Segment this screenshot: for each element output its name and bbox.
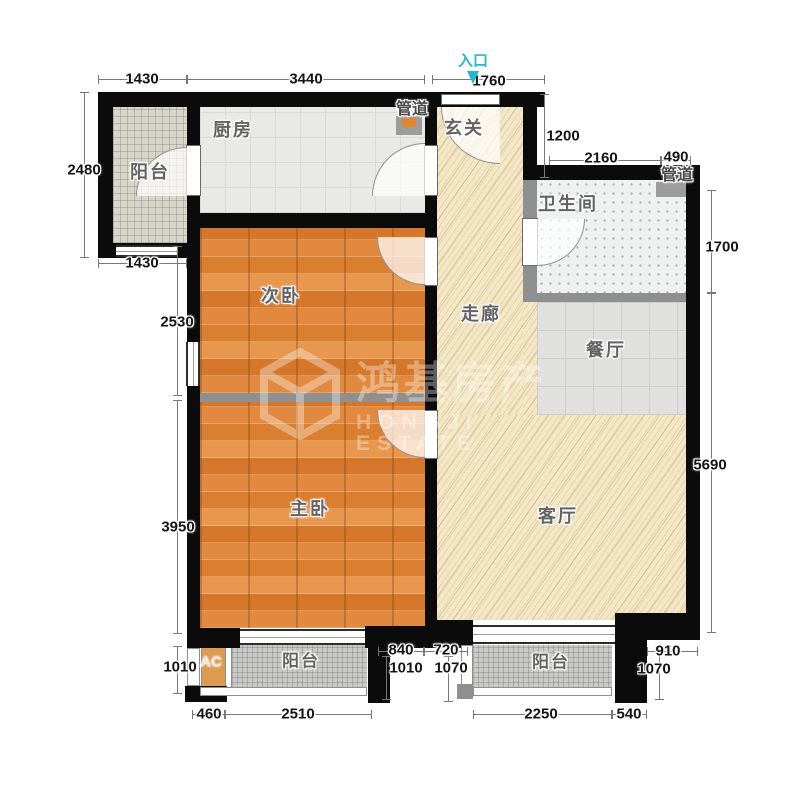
door-bedroom2-leaf (424, 237, 438, 286)
dimline-foyer-1200 (544, 94, 545, 178)
post-balcony-br-corner (457, 684, 473, 699)
window-living-balcony (473, 625, 615, 644)
dim-bathroom-height: 1700 (705, 240, 738, 255)
door-bedroom1-leaf (424, 410, 438, 459)
dim-bedroom2-height: 2530 (160, 315, 193, 330)
dim-balcony-tl-height: 2480 (67, 163, 100, 178)
dim-mid-left-height: 1010 (389, 661, 422, 676)
pipe-box-kitchen-orange (402, 118, 416, 127)
door-kitchen-leaf (424, 145, 438, 196)
dim-bathroom-width: 2160 (584, 151, 617, 166)
dim-balcony-br-side: 540 (616, 707, 641, 722)
wall-right-main (686, 165, 700, 640)
wall-bottom-right (647, 613, 700, 640)
dim-balcony-br-width: 2250 (524, 707, 557, 722)
label-pipe-kitchen: 管道 (396, 102, 428, 118)
dim-kitchen-width: 3440 (289, 72, 322, 87)
wall-bed1-bottom-left (187, 628, 240, 648)
label-pipe-bathroom: 管道 (661, 168, 693, 184)
dim-mid-right-height: 1070 (434, 661, 467, 676)
label-balcony-bottom-right: 阳台 (532, 654, 570, 671)
dimline-bedroom1 (177, 400, 178, 634)
door-entrance-leaf (441, 94, 500, 105)
floorplan-canvas: 鸿基房产 HONGJI ESTATE 1430 3440 1760 2480 1… (0, 0, 800, 800)
label-dining: 餐厅 (586, 341, 626, 359)
dim-balcony-bl-height: 1010 (163, 660, 196, 675)
entrance-label: 入口 (458, 50, 488, 71)
wall-left-main (187, 243, 200, 648)
dim-living-height: 5690 (693, 458, 726, 473)
label-ac: AC (200, 654, 222, 671)
dim-corner-right-width: 910 (655, 644, 680, 659)
dim-corner-right-height: 1070 (637, 662, 670, 677)
label-balcony-top-left: 阳台 (130, 163, 170, 181)
wall-kitchen-bottom (187, 213, 437, 228)
label-foyer: 玄关 (444, 119, 484, 137)
dim-foyer-height: 1200 (546, 129, 579, 144)
wall-bottom-right-column (615, 613, 647, 703)
entrance-arrow-icon (467, 71, 479, 84)
rail-balcony-br-bottom (473, 687, 612, 696)
rail-balcony-bl-bottom (200, 687, 367, 696)
room-corridor-extension (523, 302, 537, 415)
dimline-mid-1010 (386, 656, 387, 700)
ac-side-rail-right (225, 645, 232, 688)
label-living: 客厅 (538, 507, 578, 525)
window-bedroom1-balcony (240, 629, 365, 645)
label-bathroom: 卫生间 (538, 195, 598, 213)
pipe-box-bathroom-gray (656, 182, 686, 197)
dim-balcony-tl-bottom: 1430 (125, 256, 158, 271)
wall-bedroom-divider (200, 393, 425, 402)
dim-ac-width: 460 (196, 707, 221, 722)
dim-mid-right-width: 720 (433, 643, 458, 658)
label-bedroom-second: 次卧 (261, 287, 301, 305)
window-bedroom2-left (186, 342, 200, 386)
dim-bedroom1-height: 3950 (161, 520, 194, 535)
wall-bathroom-bottom (537, 293, 686, 302)
dim-balcony-bl-width: 2510 (281, 707, 314, 722)
door-bathroom-leaf (522, 218, 538, 266)
dim-balcony-tl-width: 1430 (125, 72, 158, 87)
door-balcony-tl-leaf (186, 145, 201, 196)
label-balcony-bottom-left: 阳台 (282, 653, 320, 670)
label-corridor: 走廊 (461, 305, 501, 323)
dim-mid-left-width: 840 (388, 643, 413, 658)
dim-pipe-shaft-width: 490 (663, 150, 688, 165)
label-kitchen: 厨房 (213, 121, 253, 139)
label-bedroom-master: 主卧 (290, 500, 330, 518)
